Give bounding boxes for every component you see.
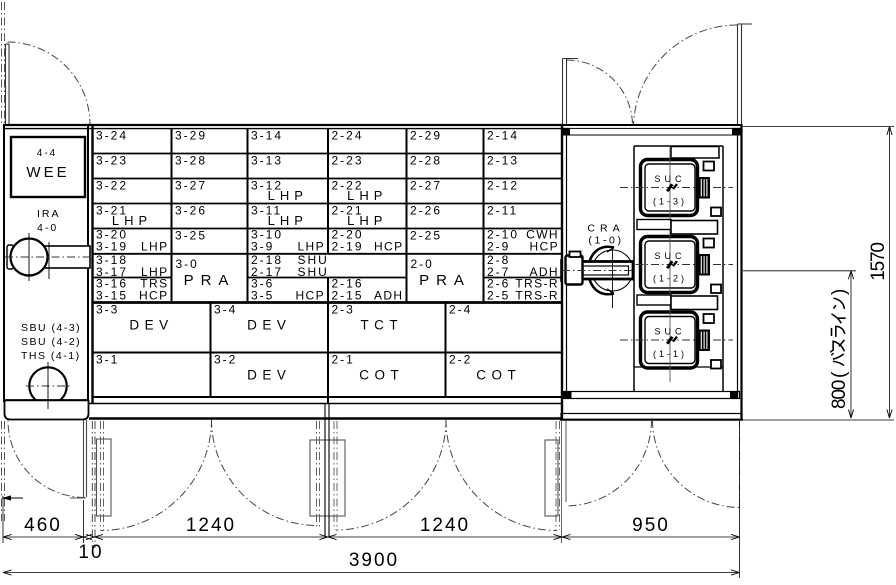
svg-text:3-29: 3-29 bbox=[175, 129, 207, 143]
svg-text:3-5: 3-5 bbox=[251, 289, 274, 303]
svg-text:3-1: 3-1 bbox=[96, 353, 119, 367]
svg-text:800: 800 bbox=[829, 380, 850, 409]
svg-text:SBU (4-2): SBU (4-2) bbox=[21, 336, 81, 348]
svg-text:1240: 1240 bbox=[420, 515, 470, 536]
svg-text:3-25: 3-25 bbox=[175, 229, 207, 243]
svg-text:4-4: 4-4 bbox=[37, 148, 57, 159]
svg-text:2-29: 2-29 bbox=[410, 129, 442, 143]
svg-text:3900: 3900 bbox=[349, 550, 399, 571]
svg-text:3-14: 3-14 bbox=[251, 129, 283, 143]
svg-text:DEV: DEV bbox=[247, 318, 291, 333]
svg-text:3-2: 3-2 bbox=[214, 353, 237, 367]
svg-text:2-17: 2-17 bbox=[251, 265, 283, 279]
svg-text:WEE: WEE bbox=[26, 164, 69, 181]
svg-text:4-0: 4-0 bbox=[37, 222, 58, 234]
svg-text:2-28: 2-28 bbox=[410, 154, 442, 168]
svg-text:HCP: HCP bbox=[374, 240, 404, 254]
svg-text:(1-2): (1-2) bbox=[653, 274, 687, 284]
svg-text:2-19: 2-19 bbox=[332, 240, 364, 254]
svg-text:2-25: 2-25 bbox=[410, 229, 442, 243]
svg-text:LHP: LHP bbox=[347, 213, 387, 228]
svg-text:2-13: 2-13 bbox=[487, 154, 519, 168]
svg-text:3-28: 3-28 bbox=[175, 154, 207, 168]
svg-text:3-24: 3-24 bbox=[96, 129, 128, 143]
svg-text:2-5: 2-5 bbox=[487, 289, 510, 303]
svg-text:(1-3): (1-3) bbox=[653, 197, 687, 207]
svg-text:LHP: LHP bbox=[297, 240, 325, 254]
svg-text:2-12: 2-12 bbox=[487, 179, 519, 193]
svg-text:2-0: 2-0 bbox=[411, 257, 434, 271]
svg-text:1570: 1570 bbox=[868, 243, 889, 281]
svg-text:(1-0): (1-0) bbox=[588, 235, 623, 247]
svg-text:COT: COT bbox=[359, 368, 404, 383]
svg-text:COT: COT bbox=[476, 368, 521, 383]
svg-text:CRA: CRA bbox=[587, 223, 624, 235]
svg-text:3-22: 3-22 bbox=[96, 179, 128, 193]
svg-text:3-4: 3-4 bbox=[214, 303, 237, 317]
svg-text:LHP: LHP bbox=[268, 188, 308, 203]
svg-text:3-23: 3-23 bbox=[96, 154, 128, 168]
svg-text:PRA: PRA bbox=[419, 272, 471, 289]
svg-text:2-26: 2-26 bbox=[410, 204, 442, 218]
svg-text:950: 950 bbox=[632, 515, 670, 536]
svg-text:3-0: 3-0 bbox=[176, 257, 199, 271]
svg-text:3-3: 3-3 bbox=[96, 303, 119, 317]
svg-text:3-27: 3-27 bbox=[175, 179, 207, 193]
svg-text:PRA: PRA bbox=[184, 272, 236, 289]
svg-text:3-26: 3-26 bbox=[175, 204, 207, 218]
svg-text:DEV: DEV bbox=[129, 318, 173, 333]
svg-text:LHP: LHP bbox=[347, 188, 387, 203]
svg-text:LHP: LHP bbox=[268, 213, 308, 228]
svg-text:TCT: TCT bbox=[360, 318, 403, 333]
svg-text:(1-1): (1-1) bbox=[653, 349, 687, 359]
svg-text:ADH: ADH bbox=[374, 289, 404, 303]
svg-text:SUC: SUC bbox=[654, 174, 685, 184]
svg-text:2-3: 2-3 bbox=[332, 303, 355, 317]
svg-text:HCP: HCP bbox=[139, 289, 169, 303]
svg-text:2-11: 2-11 bbox=[487, 204, 518, 218]
svg-text:DEV: DEV bbox=[247, 368, 291, 383]
svg-text:3-13: 3-13 bbox=[251, 154, 283, 168]
svg-text:LHP: LHP bbox=[112, 213, 152, 228]
svg-text:TRS-R: TRS-R bbox=[515, 289, 559, 303]
svg-text:SBU (4-3): SBU (4-3) bbox=[21, 322, 81, 334]
svg-text:1240: 1240 bbox=[186, 515, 236, 536]
svg-text:2-4: 2-4 bbox=[449, 303, 472, 317]
svg-text:3-19: 3-19 bbox=[96, 240, 128, 254]
svg-text:LHP: LHP bbox=[141, 240, 169, 254]
svg-text:2-27: 2-27 bbox=[410, 179, 442, 193]
svg-text:2-14: 2-14 bbox=[487, 129, 519, 143]
svg-text:SHU: SHU bbox=[298, 265, 329, 279]
svg-text:THS (4-1): THS (4-1) bbox=[21, 350, 81, 362]
svg-text:2-23: 2-23 bbox=[332, 154, 364, 168]
svg-text:IRA: IRA bbox=[37, 208, 61, 220]
svg-text:HCP: HCP bbox=[529, 240, 559, 254]
svg-text:SUC: SUC bbox=[654, 251, 685, 261]
svg-text:SUC: SUC bbox=[654, 327, 685, 337]
svg-text:2-9: 2-9 bbox=[487, 240, 510, 254]
svg-text:HCP: HCP bbox=[295, 289, 325, 303]
svg-text:2-2: 2-2 bbox=[449, 353, 472, 367]
svg-text:(: ( bbox=[829, 371, 850, 378]
svg-text:10: 10 bbox=[78, 542, 103, 563]
svg-text:3-9: 3-9 bbox=[251, 240, 274, 254]
svg-text:2-1: 2-1 bbox=[332, 353, 355, 367]
svg-text:3-15: 3-15 bbox=[96, 289, 128, 303]
svg-text:2-15: 2-15 bbox=[332, 289, 364, 303]
svg-text:460: 460 bbox=[24, 515, 62, 536]
svg-text:): ) bbox=[829, 289, 850, 295]
svg-text:2-24: 2-24 bbox=[332, 129, 364, 143]
